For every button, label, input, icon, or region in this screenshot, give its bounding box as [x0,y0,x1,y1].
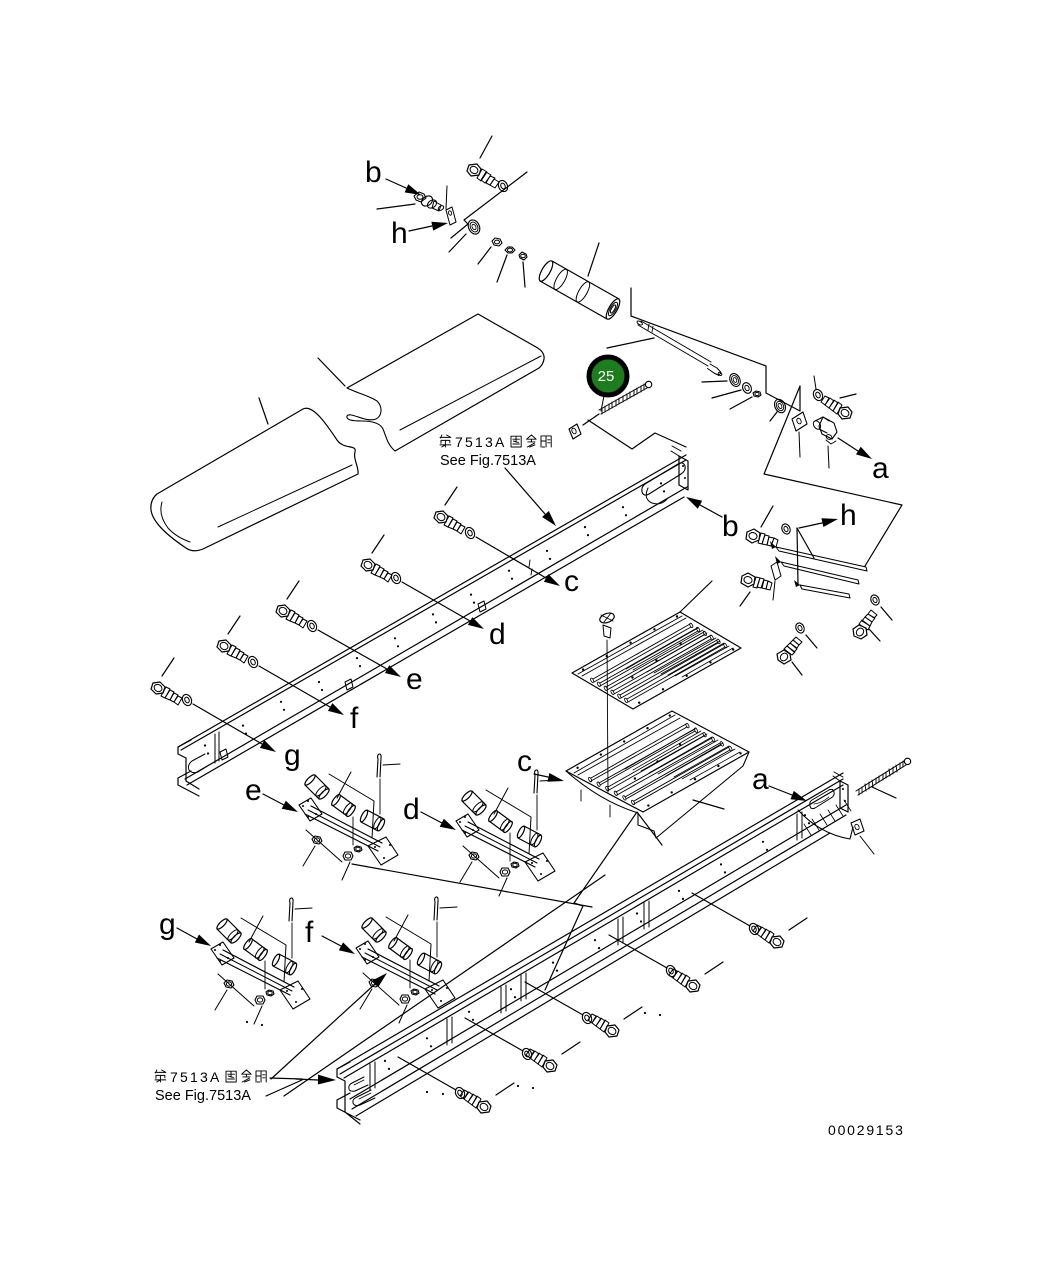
svg-text:d: d [489,618,506,651]
svg-text:b: b [365,156,382,189]
svg-text:g: g [159,908,176,941]
svg-text:g: g [284,739,301,772]
svg-text:c: c [517,745,532,778]
svg-text:25: 25 [598,368,615,385]
svg-text:See Fig.7513A: See Fig.7513A [440,453,536,469]
svg-text:e: e [245,774,262,807]
svg-text:7513A: 7513A [170,1069,221,1085]
svg-text:c: c [564,565,579,598]
svg-text:See Fig.7513A: See Fig.7513A [155,1088,251,1104]
svg-text:f: f [350,702,359,735]
svg-text:f: f [305,916,314,949]
svg-text:a: a [872,452,889,485]
svg-text:a: a [752,763,769,796]
svg-text:h: h [391,217,408,250]
svg-text:h: h [840,499,857,532]
svg-text:7513A: 7513A [455,434,506,450]
svg-text:00029153: 00029153 [828,1122,905,1138]
svg-text:b: b [722,510,739,543]
svg-text:d: d [403,793,420,826]
svg-text:e: e [406,663,423,696]
